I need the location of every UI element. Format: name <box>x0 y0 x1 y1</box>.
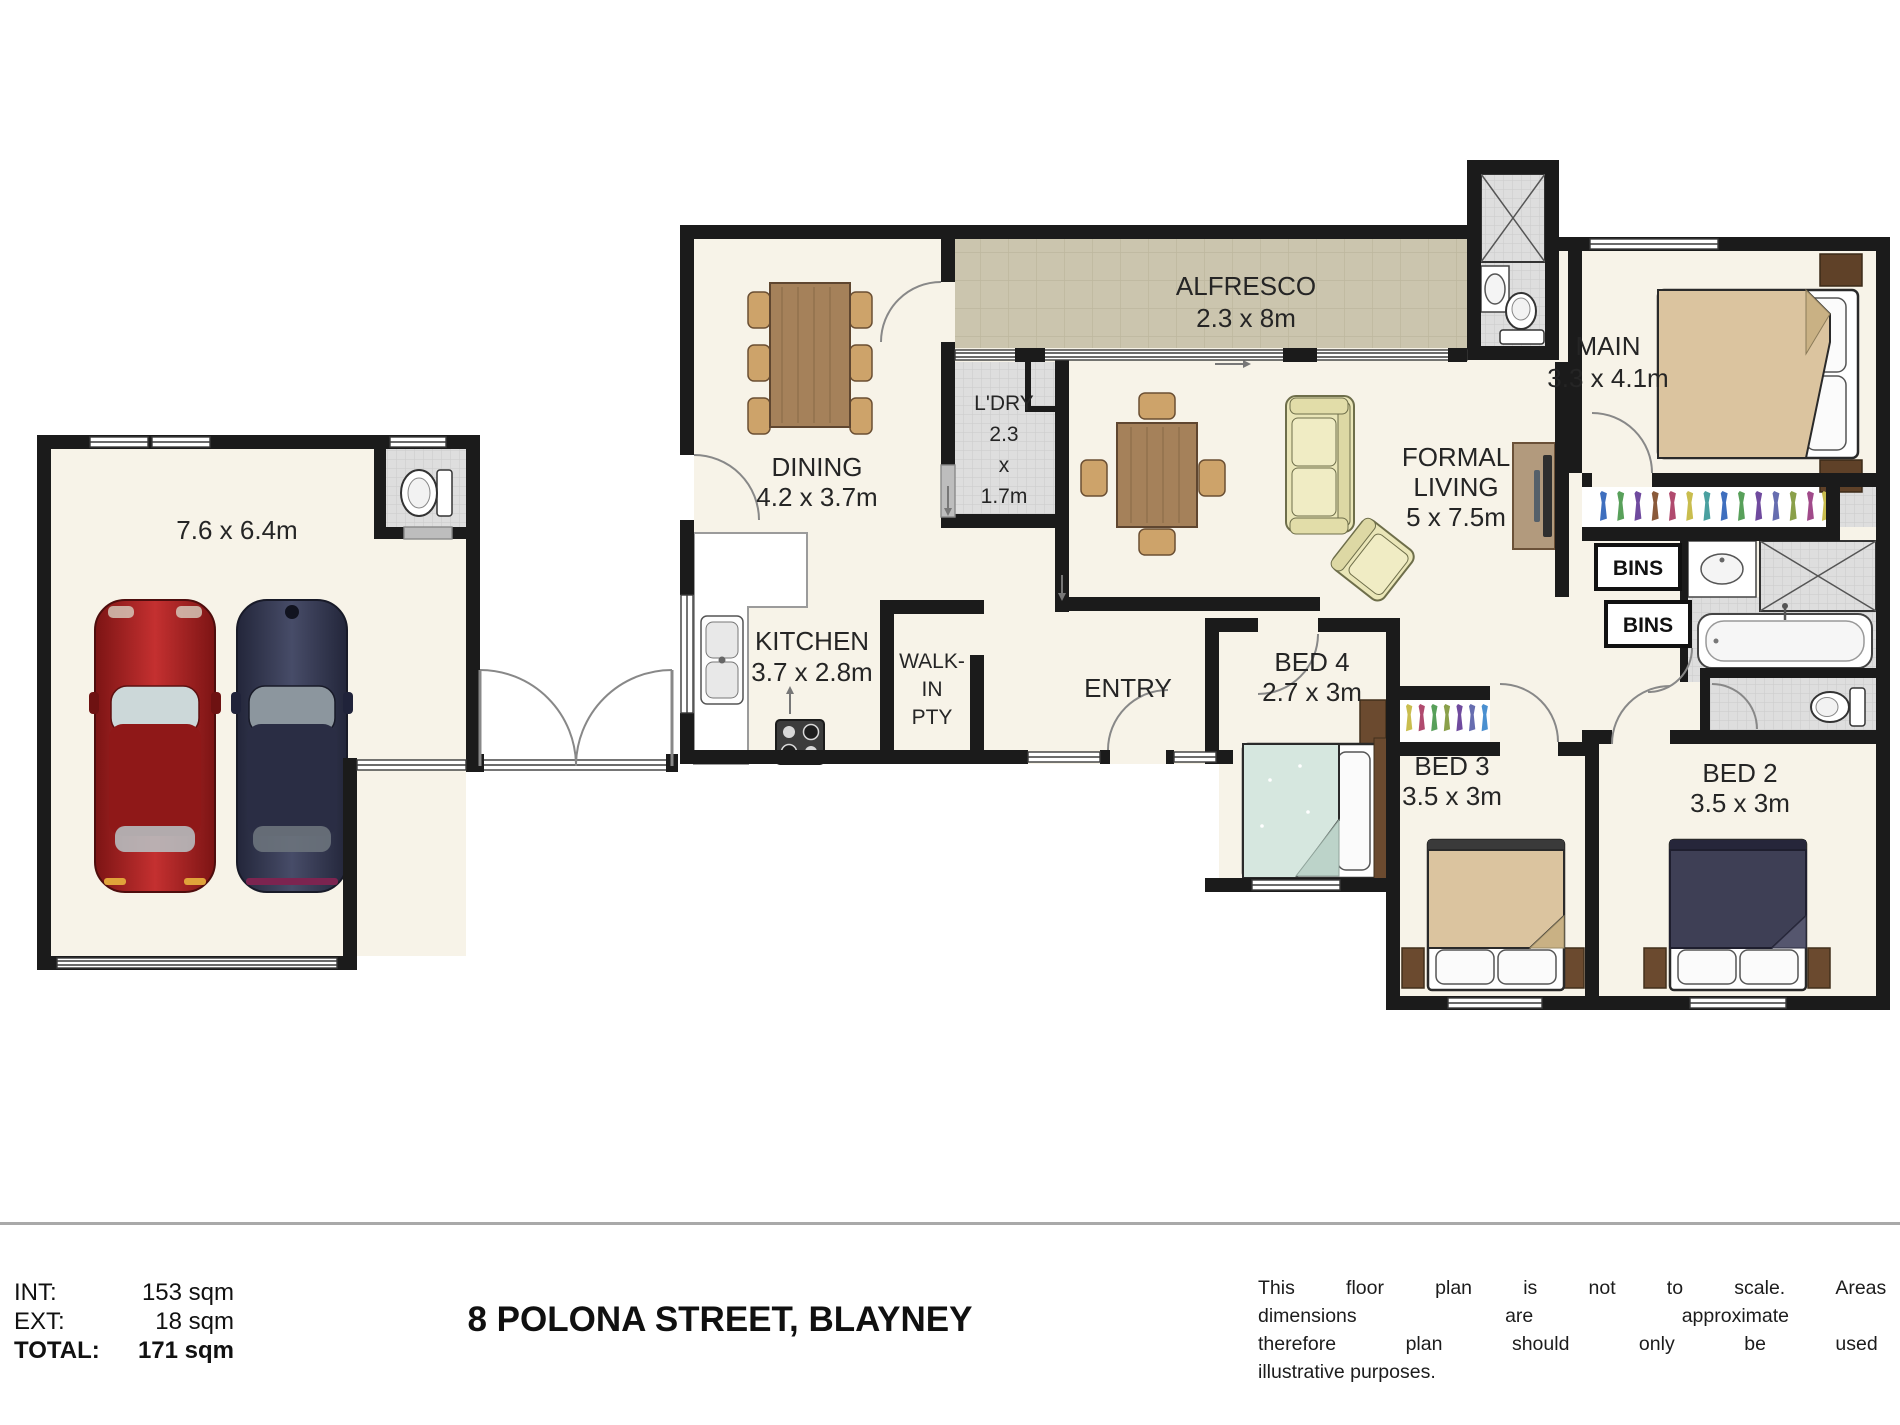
floorplan-page: 7.6 x 6.4m DINING 4.2 x 3.7m ALFRESCO 2.… <box>0 0 1900 1425</box>
window <box>390 437 446 447</box>
ensuite-corner-floor <box>1840 487 1876 527</box>
disclaimer-line: This floor plan is not to scale. Areas a… <box>1258 1274 1900 1302</box>
laundry-dims-1: 2.3 <box>989 423 1018 446</box>
bins1-label: BINS <box>1613 557 1663 580</box>
area-row-total: TOTAL: 171 sqm <box>14 1336 234 1365</box>
footer-divider <box>0 1222 1900 1225</box>
bed4-label: BED 4 <box>1274 647 1349 677</box>
alfresco-label: ALFRESCO <box>1176 271 1316 301</box>
pantry-label-1: WALK- <box>899 650 965 673</box>
window <box>1028 752 1100 762</box>
bed3-label: BED 3 <box>1414 751 1489 781</box>
window <box>1252 880 1340 890</box>
car-red-icon <box>89 600 221 892</box>
floorplan-drawing: 7.6 x 6.4m DINING 4.2 x 3.7m ALFRESCO 2.… <box>0 0 1900 1222</box>
disclaimer-line: therefore plan should only be used for <box>1258 1330 1900 1358</box>
toilet-icon <box>1811 688 1865 726</box>
laundry-dims-3: 1.7m <box>981 485 1028 508</box>
window <box>357 760 466 770</box>
int-label: INT: <box>14 1278 134 1307</box>
bed2-dims-label: 3.5 x 3m <box>1690 788 1790 818</box>
dining-label: DINING <box>772 452 863 482</box>
bed2-bed-icon <box>1644 840 1830 990</box>
kitchen-sink-icon <box>701 616 743 704</box>
ext-label: EXT: <box>14 1307 134 1336</box>
kitchen-dims-label: 3.7 x 2.8m <box>751 657 872 687</box>
living-label-1: FORMAL <box>1402 442 1510 472</box>
window <box>1590 239 1718 249</box>
entry-label: ENTRY <box>1084 673 1172 703</box>
disclaimer-line: illustrative purposes. <box>1258 1358 1900 1386</box>
alfresco-dims-label: 2.3 x 8m <box>1196 303 1296 333</box>
tv-unit-icon <box>1513 443 1555 549</box>
window <box>1174 752 1216 762</box>
bed4-dims-label: 2.7 x 3m <box>1262 677 1362 707</box>
sliding-door <box>955 348 1467 362</box>
bed2-label: BED 2 <box>1702 758 1777 788</box>
area-row-ext: EXT: 18 sqm <box>14 1307 234 1336</box>
car-navy-icon <box>231 600 353 892</box>
sofa-icon <box>1286 396 1354 534</box>
bathroom-sink-icon <box>1688 541 1756 597</box>
main-label: MAIN <box>1576 331 1641 361</box>
area-row-int: INT: 153 sqm <box>14 1278 234 1307</box>
window <box>1690 998 1786 1008</box>
window <box>1448 998 1542 1008</box>
slide-door <box>404 527 452 539</box>
garage-door <box>57 958 337 968</box>
garage-dims-label: 7.6 x 6.4m <box>176 515 297 545</box>
page-title: 8 POLONA STREET, BLAYNEY <box>440 1300 1000 1340</box>
window <box>152 437 210 447</box>
main-bed-icon <box>1658 254 1862 492</box>
disclaimer-text: This floor plan is not to scale. Areas a… <box>1258 1274 1900 1386</box>
total-value: 171 sqm <box>134 1336 234 1365</box>
bed3-dims-label: 3.5 x 3m <box>1402 781 1502 811</box>
garage-toilet-icon <box>401 470 452 516</box>
living-dims-label: 5 x 7.5m <box>1406 502 1506 532</box>
dining-dims-label: 4.2 x 3.7m <box>756 482 877 512</box>
area-summary: INT: 153 sqm EXT: 18 sqm TOTAL: 171 sqm <box>14 1278 234 1365</box>
living-label-2: LIVING <box>1413 472 1498 502</box>
sink-icon <box>1481 266 1509 312</box>
disclaimer-line: dimensions are approximate and <box>1258 1302 1900 1330</box>
main-dims-label: 3.3 x 4.1m <box>1547 363 1668 393</box>
window <box>681 595 693 713</box>
bed3-bed-icon <box>1402 840 1584 990</box>
ext-value: 18 sqm <box>134 1307 234 1336</box>
bins2-label: BINS <box>1623 614 1673 637</box>
double-entry-doors <box>472 670 678 772</box>
laundry-label: L'DRY <box>974 392 1034 415</box>
pantry-label-3: PTY <box>912 706 953 729</box>
kitchen-label: KITCHEN <box>755 626 869 656</box>
int-value: 153 sqm <box>134 1278 234 1307</box>
window <box>90 437 148 447</box>
laundry-dims-2: x <box>999 454 1010 477</box>
dining-table-icon <box>748 283 872 434</box>
total-label: TOTAL: <box>14 1336 134 1365</box>
pantry-label-2: IN <box>922 678 943 701</box>
